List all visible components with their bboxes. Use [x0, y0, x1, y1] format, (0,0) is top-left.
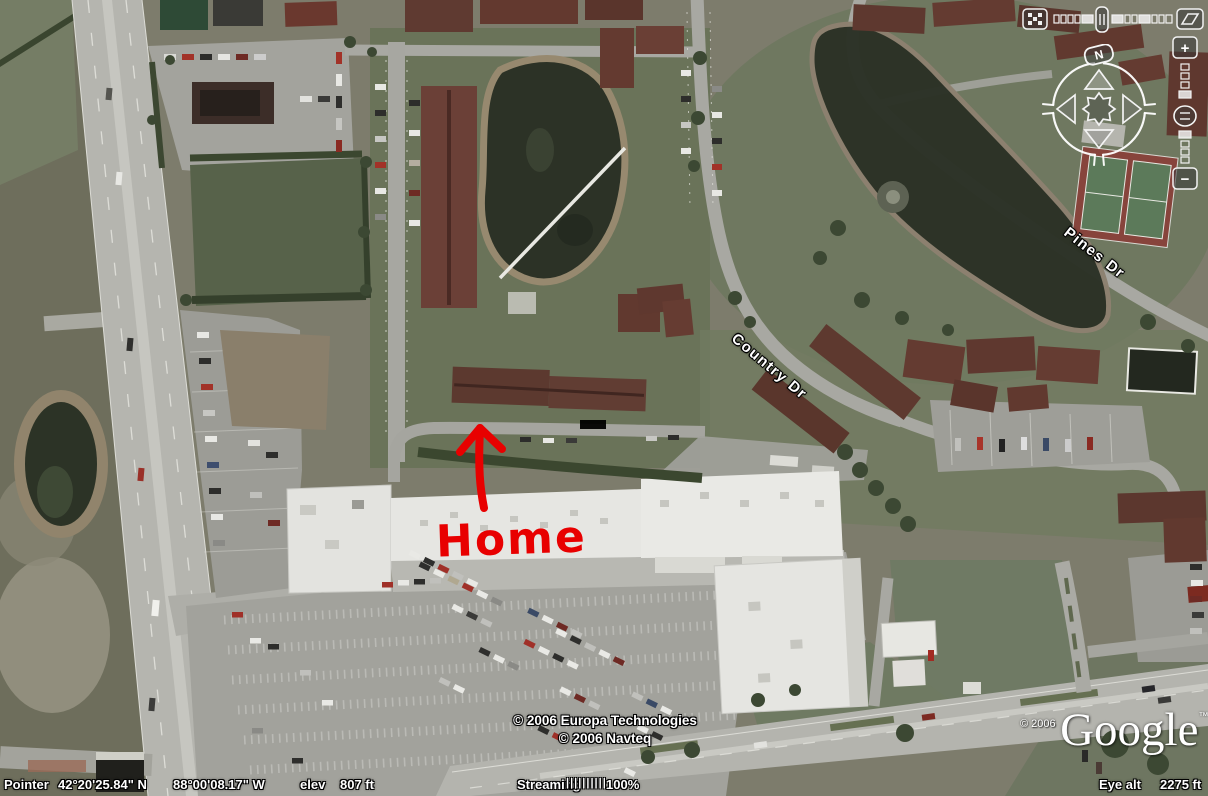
- zoom-in-label: +: [1181, 40, 1190, 57]
- north-button[interactable]: N: [1083, 44, 1114, 66]
- flat-roof-structure: [1127, 348, 1197, 394]
- google-trademark: ™: [1198, 711, 1208, 722]
- streaming-percent: 100%: [606, 777, 639, 792]
- streaming-gauge: ||||||||||: [566, 777, 607, 789]
- compass-navigator[interactable]: N: [1040, 44, 1158, 179]
- compass-center-knob[interactable]: [1083, 93, 1115, 125]
- green-roof-building: [160, 0, 337, 30]
- vacant-dirt-lot: [220, 330, 330, 430]
- shopping-center-left-block: [287, 485, 391, 593]
- tilt-slider[interactable]: [1022, 6, 1204, 39]
- eye-altitude-value: 2275 ft: [1160, 777, 1201, 792]
- restaurant-building: [192, 82, 274, 124]
- pointer-longitude: 88°00'08.17" W: [173, 777, 265, 792]
- shopping-center-right-block: [641, 471, 843, 558]
- eye-altitude-label: Eye alt: [1099, 777, 1141, 792]
- pan-right-arrow[interactable]: [1123, 95, 1141, 123]
- google-copyright-year: © 2006: [1020, 718, 1056, 730]
- lawn-field: [190, 154, 368, 306]
- zoom-handle[interactable]: [1174, 106, 1196, 126]
- cluster-parking-lot: [930, 400, 1150, 472]
- satellite-imagery[interactable]: [0, 0, 1208, 796]
- west-pond: [14, 390, 108, 538]
- pan-down-arrow[interactable]: [1085, 130, 1113, 148]
- imagery-copyright-line1: © 2006 Europa Technologies: [513, 713, 697, 728]
- tilt-handle[interactable]: [1096, 7, 1108, 32]
- pan-up-arrow[interactable]: [1085, 70, 1113, 89]
- zoom-out-label: −: [1181, 171, 1190, 188]
- google-earth-viewport[interactable]: Pines Dr Country Dr Home © 2006 Europa T…: [0, 0, 1208, 796]
- pointer-label: Pointer: [4, 777, 49, 792]
- pointer-latitude: 42°20'25.84" N: [58, 777, 147, 792]
- pan-left-arrow[interactable]: [1057, 95, 1075, 123]
- imagery-copyright-line2: © 2006 Navteq: [559, 731, 652, 746]
- elevation-value: 807 ft: [340, 777, 374, 792]
- zoom-slider[interactable]: + −: [1170, 36, 1200, 199]
- zoom-in-button[interactable]: +: [1173, 37, 1197, 58]
- zoom-out-button[interactable]: −: [1173, 168, 1197, 189]
- tilt-track[interactable]: [1054, 15, 1172, 23]
- tilt-reset-button[interactable]: [1023, 9, 1047, 29]
- tilt-horizon-button[interactable]: [1177, 9, 1203, 29]
- home-annotation-arrow: [440, 414, 520, 518]
- elevation-label: elev: [300, 777, 325, 792]
- google-logo: Google: [1060, 704, 1198, 756]
- google-watermark: © 2006 Google™: [1020, 710, 1206, 750]
- home-annotation-text: Home: [435, 511, 587, 567]
- status-bar: Pointer 42°20'25.84" N 88°00'08.17" W el…: [0, 777, 1208, 796]
